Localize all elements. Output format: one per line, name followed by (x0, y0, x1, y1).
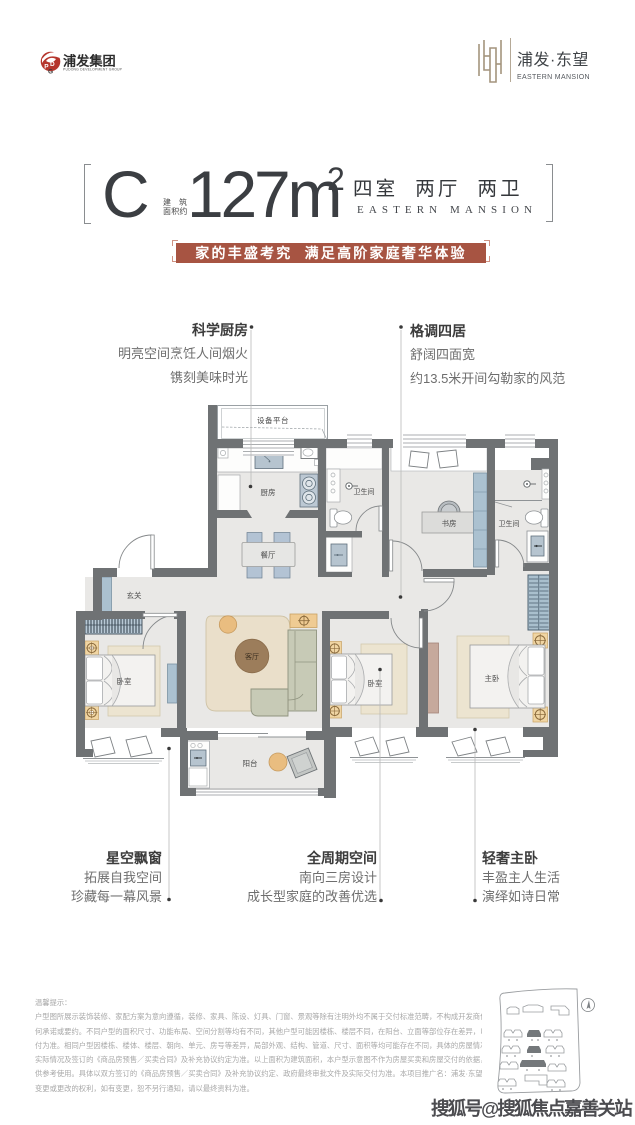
svg-text:卧室: 卧室 (368, 678, 383, 688)
svg-text:书房: 书房 (442, 518, 457, 528)
svg-text:主卧: 主卧 (485, 673, 500, 683)
svg-text:卫生间: 卫生间 (354, 487, 375, 496)
svg-text:卫生间: 卫生间 (499, 519, 520, 528)
svg-text:设备平台: 设备平台 (257, 415, 289, 425)
svg-text:厨房: 厨房 (261, 487, 276, 497)
svg-text:玄关: 玄关 (127, 590, 142, 600)
svg-text:客厅: 客厅 (245, 652, 259, 661)
svg-text:阳台: 阳台 (243, 758, 258, 768)
svg-text:餐厅: 餐厅 (261, 551, 276, 560)
svg-text:卧室: 卧室 (117, 676, 132, 686)
